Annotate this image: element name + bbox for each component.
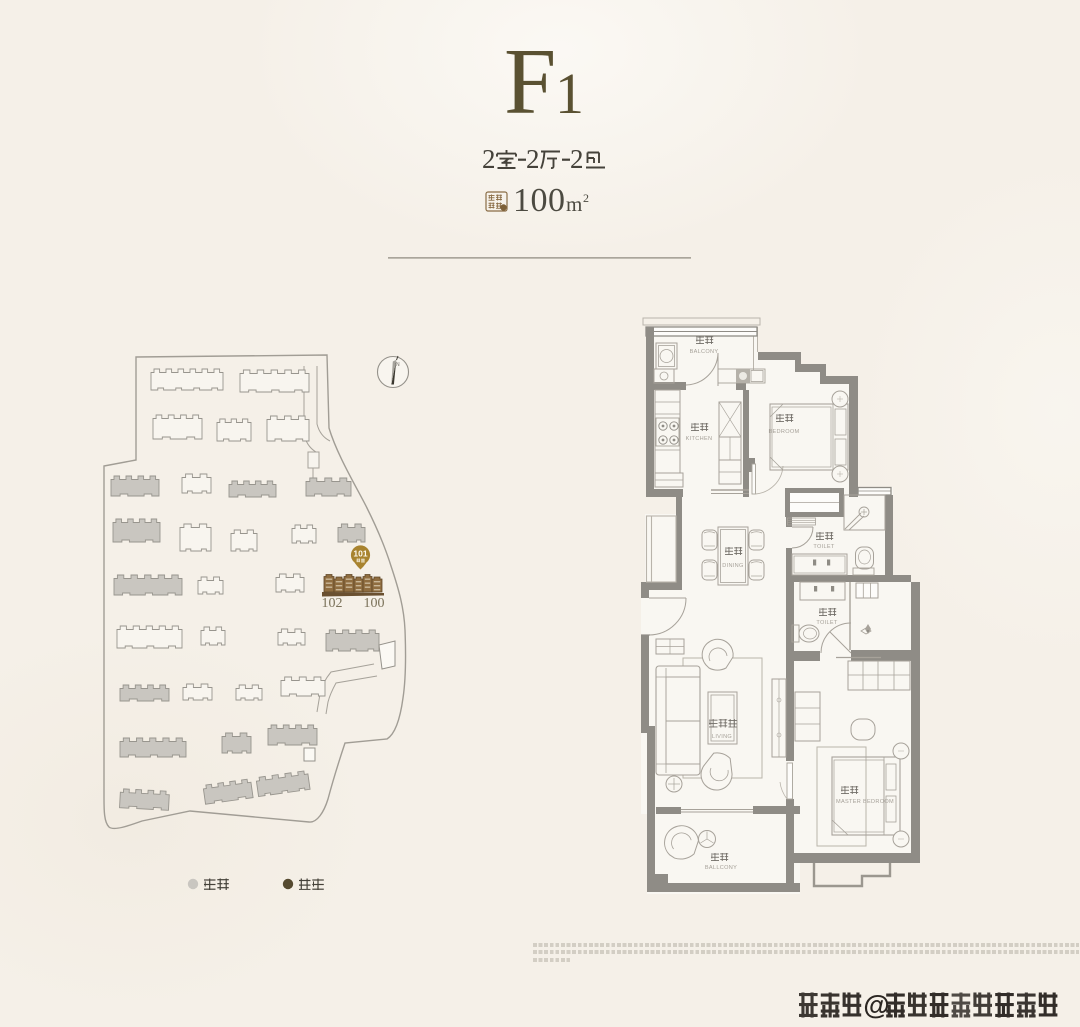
svg-text:@: @ [863,990,889,1020]
